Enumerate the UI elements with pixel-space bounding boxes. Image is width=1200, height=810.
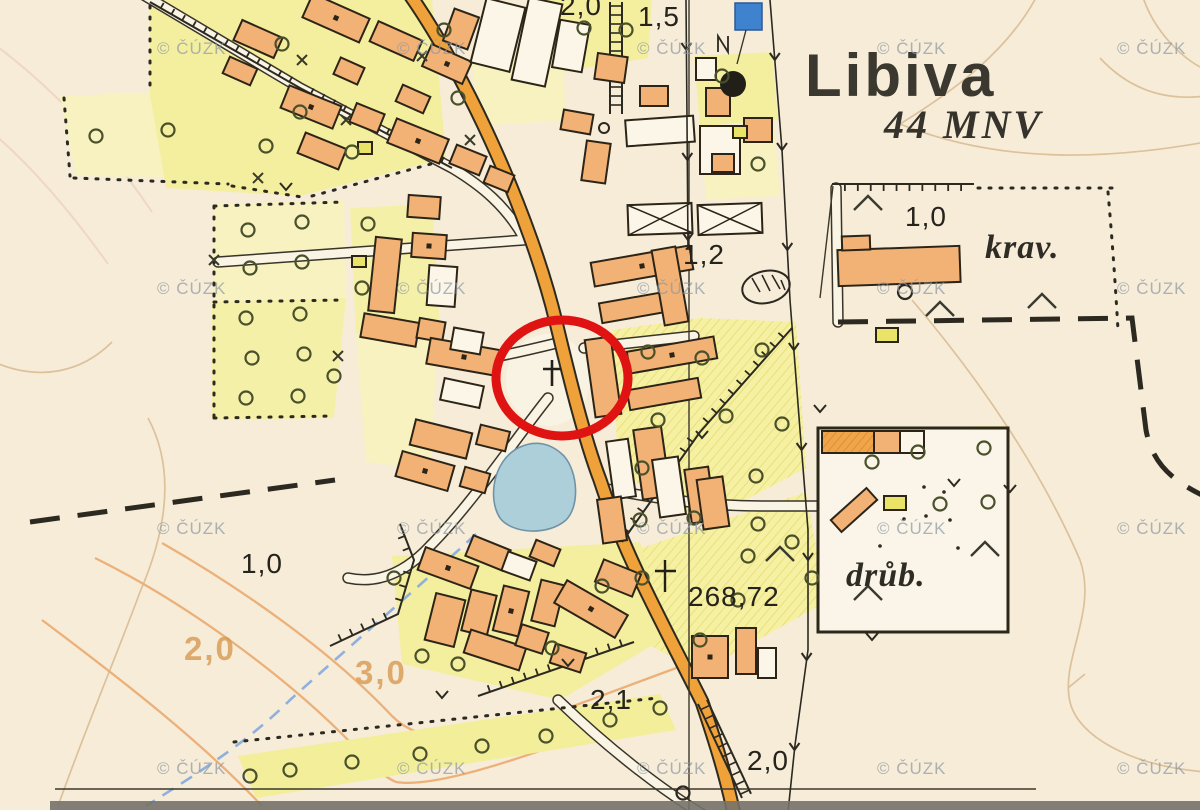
building: [460, 467, 491, 493]
watermark-text: © ČÚZK: [877, 39, 947, 58]
watermark-text: © ČÚZK: [397, 39, 467, 58]
building: [842, 236, 870, 251]
ground-dot: [924, 514, 928, 518]
ground-dot: [878, 544, 882, 548]
krav-label: krav.: [985, 229, 1060, 266]
building: [876, 328, 898, 342]
building: [476, 425, 510, 452]
watermark-text: © ČÚZK: [397, 279, 467, 298]
building: [395, 451, 454, 491]
depth-label: 2,1: [590, 684, 632, 715]
building: [440, 378, 484, 408]
contour-label: 3,0: [355, 654, 407, 691]
scrub-mark: [465, 135, 475, 145]
fence-mark: [814, 405, 826, 412]
watermark-text: © ČÚZK: [397, 519, 467, 538]
building: [758, 648, 776, 678]
watermark-text: © ČÚZK: [637, 759, 707, 778]
building: [712, 154, 734, 172]
building: [640, 86, 668, 106]
ruin-oval-icon: [739, 266, 793, 307]
watermark-text: © ČÚZK: [637, 519, 707, 538]
building: [450, 328, 483, 355]
building: [352, 256, 366, 267]
map-canvas: Libiva 44 MNV krav. drůb. 268,72 1,0 1,2…: [0, 0, 1200, 810]
building: [594, 53, 627, 83]
depth-label: 2,0: [747, 745, 789, 776]
depth-label: 1,0: [905, 201, 947, 232]
watermark-text: © ČÚZK: [877, 279, 947, 298]
watermark-text: © ČÚZK: [877, 519, 947, 538]
ground-dot: [956, 546, 960, 550]
building: [692, 636, 728, 678]
vegetation-layer: [60, 0, 1006, 798]
building: [581, 141, 610, 184]
slope-tick: [338, 634, 341, 640]
slope-tick: [361, 624, 364, 630]
fence-mark: [436, 691, 448, 698]
building: [411, 233, 447, 259]
slope-tick: [488, 685, 490, 692]
watermark-text: © ČÚZK: [637, 279, 707, 298]
watermark-text: © ČÚZK: [157, 39, 227, 58]
watermark-text: © ČÚZK: [157, 519, 227, 538]
watermark-text: © ČÚZK: [1117, 519, 1187, 538]
steps-rung: [740, 790, 749, 794]
well-icon: [599, 123, 609, 133]
depth-label: 1,2: [683, 239, 725, 270]
building: [736, 628, 756, 674]
watermark-text: © ČÚZK: [157, 759, 227, 778]
slope-tick: [638, 508, 644, 512]
building: [696, 58, 716, 80]
pond: [494, 443, 576, 531]
watermark-text: © ČÚZK: [1117, 279, 1187, 298]
depth-label: 1,0: [241, 548, 283, 579]
depth-label: 1,5: [638, 1, 680, 32]
place-code-label: 44 MNV: [883, 102, 1043, 147]
building: [697, 203, 762, 235]
building: [625, 116, 695, 147]
slope-tick: [372, 618, 375, 624]
watermark-text: © ČÚZK: [637, 39, 707, 58]
building: [407, 195, 440, 219]
watermark-text: © ČÚZK: [1117, 759, 1187, 778]
watermark-text: © ČÚZK: [1117, 39, 1187, 58]
scan-edge: [50, 801, 1200, 810]
building: [597, 497, 627, 544]
slope-tick: [403, 548, 410, 551]
depth-label: 2,0: [560, 0, 602, 21]
ground-dot: [922, 485, 926, 489]
steps-rung: [736, 781, 745, 785]
building: [627, 203, 692, 235]
map-viewport[interactable]: Libiva 44 MNV krav. drůb. 268,72 1,0 1,2…: [0, 0, 1200, 810]
building: [744, 118, 772, 142]
building: [822, 431, 876, 453]
municipal-boundary: [30, 480, 335, 522]
contour-label: 2,0: [184, 630, 236, 667]
ground-dot: [942, 490, 946, 494]
fence-mark: [866, 633, 878, 640]
slope-tick: [350, 629, 353, 635]
drub-label: drůb.: [846, 557, 926, 594]
building: [874, 431, 900, 453]
watermark-text: © ČÚZK: [157, 279, 227, 298]
north-mark-icon: [718, 36, 728, 52]
building: [560, 110, 593, 135]
ground-dot: [948, 518, 952, 522]
elevation-label: 268,72: [688, 581, 780, 612]
meadow-icon: [926, 302, 954, 316]
blue-marker-icon: [735, 3, 762, 30]
building: [358, 142, 372, 154]
meadow-icon: [1028, 294, 1056, 308]
building: [884, 496, 906, 510]
steps-rung: [731, 771, 740, 775]
building: [733, 126, 747, 138]
watermark-text: © ČÚZK: [397, 759, 467, 778]
watermark-text: © ČÚZK: [877, 759, 947, 778]
village-center-dot: [720, 71, 746, 97]
meadow-icon: [854, 196, 882, 210]
